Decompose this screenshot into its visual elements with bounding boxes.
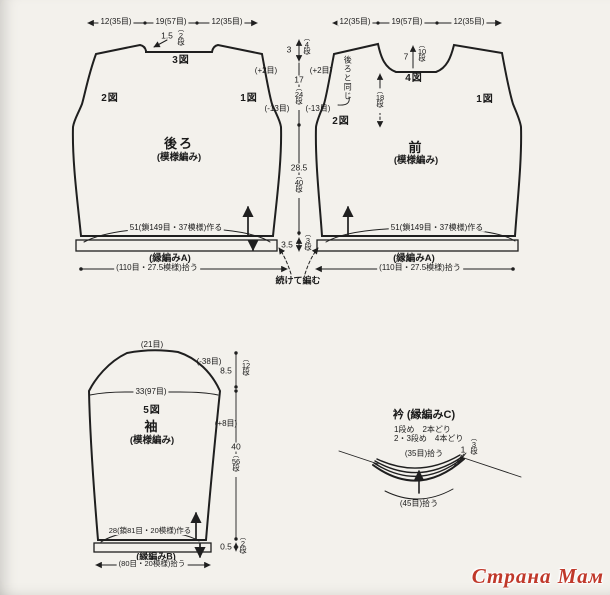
back-left-figure-label: 2図: [101, 94, 119, 105]
vparen-close: ︶: [233, 472, 240, 477]
pattern-line-art: [0, 0, 610, 595]
vparen-close: ︶: [178, 46, 185, 51]
sleeve-length-rows-bracket: ︵ 56 段 ︶: [231, 454, 241, 477]
front-armhole-decrease: (-13目): [306, 105, 331, 113]
back-hem-pickup: (110目・27.5模様)拾う: [114, 264, 200, 272]
vparen-close: ︶: [296, 105, 303, 110]
front-hem-pickup: (110目・27.5模様)拾う: [377, 264, 463, 272]
front-armhole-increase: (+2目): [310, 67, 332, 75]
collar-note-row23: 2・3段め 4本どり: [394, 435, 463, 443]
front-measure-neck: 19(57目): [389, 18, 424, 26]
collar-right-extension: [461, 457, 521, 477]
back-stitch-label: (模様編み): [157, 153, 201, 163]
knitting-pattern-page: 12(35目) 19(57目) 12(35目) 1.5 ︵ 2 段 ︶ 3図 2…: [0, 0, 610, 595]
back-neck-pointer-arrow: [154, 40, 167, 47]
continue-knitting-note: 続けて編む: [275, 276, 320, 285]
front-measure-shoulder-left: 12(35目): [337, 18, 372, 26]
hem-rows-bracket: ︵ 3 段 ︶: [304, 233, 312, 256]
body-rows-bracket: ︵ 40 段 ︶: [294, 175, 304, 198]
front-piece-name: 前: [408, 141, 423, 155]
back-measure-shoulder-left: 12(35目): [98, 18, 133, 26]
vparen-close: ︶: [304, 55, 311, 60]
front-measure-shoulder-right: 12(35目): [451, 18, 486, 26]
back-neck-depth: 1.5: [161, 32, 173, 41]
back-neck-figure-label: 3図: [172, 56, 190, 67]
collar-rows-bracket: ︵ 3 段 ︶: [470, 437, 478, 460]
shoulder-rows-bracket: ︵ 4 段 ︶: [303, 37, 311, 60]
front-left-figure-label: 2図: [332, 117, 350, 128]
collar-left-extension: [339, 451, 378, 464]
back-armhole-decrease: (-13目): [265, 105, 290, 113]
body-length-cm: 28.5: [289, 164, 310, 173]
back-measure-neck: 19(57目): [153, 18, 188, 26]
armhole-rows-bracket: ︵ 24 段 ︶: [294, 87, 304, 110]
vparen-close: ︶: [471, 455, 478, 460]
vparen-close: ︶: [243, 376, 250, 381]
sleeve-cuff-rows-bracket: ︵ 2 段 ︶: [239, 536, 247, 559]
sleeve-cuff-height-cm: 0.5: [220, 543, 232, 552]
sleeve-cuff-cast-on: 28(鎖81目・20模様)作る: [107, 527, 194, 535]
sleeve-piece-name: 袖: [144, 420, 159, 434]
front-neck-rows-bracket: ︵ 10 段 ︶: [417, 44, 427, 67]
back-measure-shoulder-right: 12(35目): [209, 18, 244, 26]
armhole-depth-cm: 17: [292, 76, 305, 85]
back-hem-cast-on: 51(鎖149目・37模様)作る: [128, 224, 224, 232]
back-piece-name: 後ろ: [164, 137, 194, 151]
sleeve-increase: (+8目): [215, 420, 237, 428]
back-hem-band: [76, 240, 277, 251]
sleeve-cap-rows-bracket: ︵ 12 段 ︶: [242, 358, 250, 381]
front-neck-figure-label: 4図: [405, 74, 423, 85]
sleeve-cap-decrease: (-38目): [197, 358, 222, 366]
front-stitch-label: (模様編み): [394, 156, 438, 166]
back-neck-rows-bracket: ︵ 2 段 ︶: [177, 28, 185, 51]
vparen-close: ︶: [240, 554, 247, 559]
sleeve-top-stitches: (21目): [141, 341, 163, 349]
hem-height-cm: 3.5: [281, 241, 293, 250]
sleeve-cuff-pickup: (80目・20模様)拾う: [117, 560, 188, 568]
back-right-figure-label: 1図: [240, 94, 258, 105]
continue-curve-left: [279, 248, 291, 274]
vparen-close: ︶: [305, 251, 312, 256]
sleeve-stitch-label: (模様編み): [130, 436, 174, 446]
front-hem-cast-on: 51(鎖149目・37模様)作る: [389, 224, 485, 232]
front-mid-rows-bracket: ︵ 18 段 ︶: [375, 90, 385, 113]
sleeve-top-width: 33(97目): [133, 388, 168, 396]
sleeve-cap-height-cm: 8.5: [218, 367, 234, 376]
collar-pickup-top: (35目)拾う: [403, 450, 445, 458]
vparen-close: ︶: [296, 193, 303, 198]
sleeve-figure-label: 5図: [143, 406, 161, 417]
front-neck-depth: 7: [404, 53, 409, 62]
front-right-figure-label: 1図: [476, 95, 494, 106]
collar-height-cm: 1: [461, 446, 466, 455]
collar-pickup-bottom: (45目)拾う: [398, 500, 440, 508]
shoulder-drop-cm: 3: [287, 46, 292, 55]
vparen-close: ︶: [419, 62, 426, 67]
back-armhole-increase: (+2目): [255, 67, 277, 75]
front-hem-band: [317, 240, 518, 251]
sleeve-length-cm: 40: [229, 443, 242, 452]
watermark: Страна Мам: [472, 564, 604, 589]
front-same-as-back-note: 後ろと同じ: [343, 56, 351, 101]
vparen-close: ︶: [377, 108, 384, 113]
collar-title: 衿 (縁編みC): [393, 410, 455, 422]
